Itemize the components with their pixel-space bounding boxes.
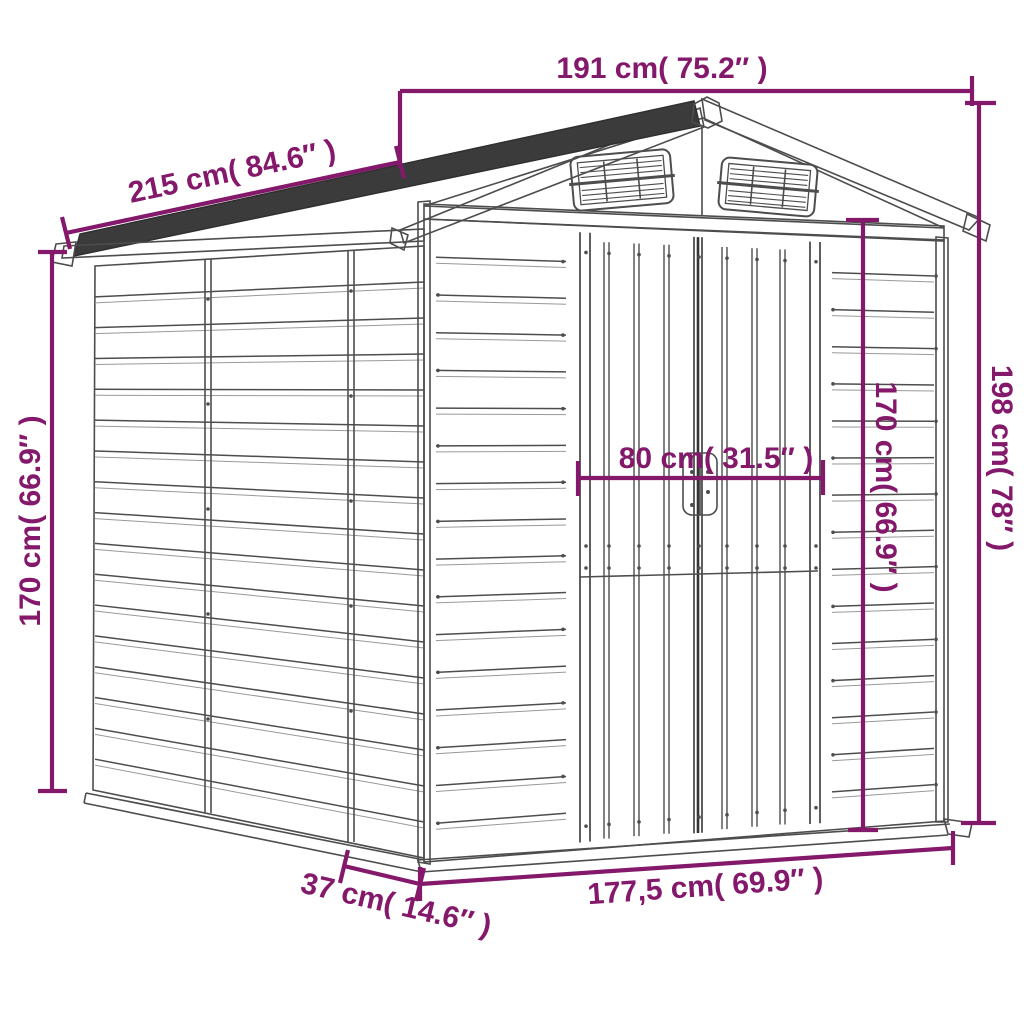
screw-dot xyxy=(607,544,611,548)
screw-dot xyxy=(697,544,701,548)
slat-line xyxy=(436,339,566,341)
screw-dot xyxy=(206,507,210,511)
slat-line xyxy=(95,282,424,297)
slat-line xyxy=(832,273,934,276)
screw-dot xyxy=(584,544,588,548)
left-wall-slats xyxy=(95,282,424,828)
screw-dot xyxy=(349,289,353,293)
dim-label-roof-width: 191 cm( 75.2″ ) xyxy=(556,52,767,85)
slat-line xyxy=(95,667,424,714)
dim-label-total-height: 198 cm( 78″ ) xyxy=(985,365,1018,551)
screw-dot xyxy=(831,530,835,534)
slat-line xyxy=(436,301,566,304)
roof-right-eave-cap xyxy=(963,214,990,241)
screw-dot xyxy=(584,251,588,255)
slat-line xyxy=(95,519,424,540)
screw-dot xyxy=(349,709,353,713)
slat-line xyxy=(832,676,934,681)
slat-line xyxy=(832,310,934,313)
slat-line xyxy=(436,703,566,710)
slat-line xyxy=(436,333,566,335)
screw-dot xyxy=(755,811,759,815)
slat-line xyxy=(832,347,934,349)
slat-line xyxy=(95,354,424,358)
left-wall xyxy=(93,246,424,858)
slat-line xyxy=(436,709,566,716)
roof-left-eave-cap xyxy=(390,228,408,250)
slat-line xyxy=(95,360,424,364)
slat-line xyxy=(95,324,424,334)
dimension-base-depth: 37 cm( 14.6″ ) xyxy=(298,850,495,943)
slat-line xyxy=(95,574,424,606)
screw-dot xyxy=(697,255,701,259)
screw-dot xyxy=(725,566,729,570)
slat-line xyxy=(832,785,934,792)
screw-dot xyxy=(436,293,440,297)
screw-dot xyxy=(607,566,611,570)
slat-line xyxy=(436,257,566,261)
front-left-panel-slats xyxy=(436,257,566,829)
screw-dot xyxy=(206,297,210,301)
slat-line xyxy=(95,389,424,390)
screw-dot xyxy=(667,544,671,548)
screw-dot xyxy=(607,252,611,256)
screw-dot xyxy=(561,333,565,337)
screw-dot xyxy=(436,746,440,750)
screw-dot xyxy=(607,823,611,827)
slat-line xyxy=(436,263,566,267)
screw-dot xyxy=(637,253,641,257)
screw-dot xyxy=(561,775,565,779)
slat-line xyxy=(95,728,424,786)
screw-dot xyxy=(814,260,818,264)
slat-line xyxy=(832,609,934,612)
slat-line xyxy=(95,698,424,750)
slat-line xyxy=(436,295,566,298)
left-wall-dividers xyxy=(205,251,354,842)
screw-dot xyxy=(725,256,729,260)
slat-line xyxy=(436,482,566,483)
slat-line xyxy=(832,645,934,649)
front-wall xyxy=(424,219,944,862)
slat-line xyxy=(436,370,566,371)
screw-dot xyxy=(436,444,440,448)
screw-dot xyxy=(637,566,641,570)
slat-line xyxy=(832,353,934,355)
screw-dot xyxy=(206,717,210,721)
slat-line xyxy=(832,754,934,760)
screw-dot xyxy=(561,628,565,632)
screw-dot xyxy=(783,808,787,812)
slat-line xyxy=(95,642,424,684)
screw-dot xyxy=(783,259,787,263)
dimension-base-width: 177,5 cm( 69.9″ ) xyxy=(420,831,953,911)
screw-dot xyxy=(584,824,588,828)
screw-dot xyxy=(831,605,835,609)
slat-line xyxy=(95,543,424,570)
screw-dot xyxy=(561,480,565,484)
slat-line xyxy=(832,639,934,643)
slat-line xyxy=(95,759,424,822)
screw-dot xyxy=(755,258,759,262)
slat-line xyxy=(95,426,424,432)
screw-dot xyxy=(349,604,353,608)
screw-dot xyxy=(783,544,787,548)
dimension-total-height: 198 cm( 78″ ) xyxy=(961,103,1018,823)
slat-line xyxy=(436,519,566,521)
slat-line xyxy=(95,765,424,828)
slat-line xyxy=(832,316,934,319)
screw-dot xyxy=(561,407,565,411)
screw-dot xyxy=(349,394,353,398)
screw-dot xyxy=(831,308,835,312)
screw-dot xyxy=(755,566,759,570)
slat-line xyxy=(832,279,934,282)
slat-line xyxy=(436,672,566,678)
screw-dot xyxy=(436,821,440,825)
screw-dot xyxy=(637,820,641,824)
slat-line xyxy=(95,734,424,792)
screw-dot xyxy=(561,554,565,558)
screw-dot xyxy=(436,369,440,373)
slat-line xyxy=(95,704,424,756)
screw-dot xyxy=(561,260,565,264)
slat-line xyxy=(436,813,566,823)
screw-dot xyxy=(667,254,671,258)
dim-label-door-width: 80 cm( 31.5″ ) xyxy=(619,442,813,475)
double-doors xyxy=(580,232,820,842)
screw-dot xyxy=(561,701,565,705)
slat-line xyxy=(95,673,424,720)
slat-line xyxy=(436,599,566,603)
slat-line xyxy=(95,420,424,426)
screw-dot xyxy=(436,671,440,675)
screw-dot xyxy=(697,815,701,819)
screw-dot xyxy=(436,595,440,599)
screw-dot xyxy=(831,382,835,386)
screw-dot xyxy=(349,499,353,503)
slat-line xyxy=(436,525,566,527)
slat-line xyxy=(95,457,424,468)
dim-label-wall-height-left: 170 cm( 66.9″ ) xyxy=(14,415,47,626)
slat-line xyxy=(436,819,566,829)
screw-dot xyxy=(725,544,729,548)
screw-dot xyxy=(206,402,210,406)
slat-line xyxy=(95,549,424,576)
screw-dot xyxy=(814,566,818,570)
screw-dot xyxy=(755,544,759,548)
slat-line xyxy=(95,451,424,462)
screw-dot xyxy=(725,813,729,817)
dim-label-door-height: 170 cm( 66.9″ ) xyxy=(869,381,902,592)
left-base-rail xyxy=(84,793,424,872)
front-right-corner-post xyxy=(936,237,948,822)
slat-line xyxy=(95,318,424,328)
screw-dot xyxy=(831,753,835,757)
screw-dot xyxy=(783,566,787,570)
screw-dot xyxy=(667,566,671,570)
screw-dot xyxy=(814,544,818,548)
slat-line xyxy=(832,791,934,798)
slat-line xyxy=(95,395,424,396)
slat-line xyxy=(832,712,934,718)
slat-line xyxy=(436,593,566,597)
slat-line xyxy=(436,635,566,640)
dimension-wall-height-left: 170 cm( 66.9″ ) xyxy=(14,252,67,791)
screw-dot xyxy=(831,456,835,460)
slat-line xyxy=(95,513,424,534)
screw-dot xyxy=(436,520,440,524)
screw-dot xyxy=(831,679,835,683)
slat-line xyxy=(95,580,424,612)
screw-dot xyxy=(637,544,641,548)
slat-line xyxy=(832,748,934,754)
slat-line xyxy=(95,605,424,642)
slat-line xyxy=(832,682,934,687)
shed-line-art xyxy=(52,97,990,872)
screw-dot xyxy=(206,612,210,616)
screw-dot xyxy=(814,806,818,810)
screw-dot xyxy=(667,818,671,822)
slat-line xyxy=(436,556,566,559)
gable-vent-right xyxy=(715,157,821,218)
screw-dot xyxy=(697,566,701,570)
slat-line xyxy=(832,718,934,724)
screw-dot xyxy=(584,566,588,570)
slat-line xyxy=(436,629,566,634)
slat-line xyxy=(95,288,424,303)
slat-line xyxy=(436,666,566,672)
shed-technical-drawing: 191 cm( 75.2″ ) 215 cm( 84.6″ ) 170 cm( … xyxy=(0,0,1024,1024)
slat-line xyxy=(436,376,566,377)
slat-line xyxy=(436,488,566,489)
slat-line xyxy=(832,603,934,606)
slat-line xyxy=(436,562,566,565)
